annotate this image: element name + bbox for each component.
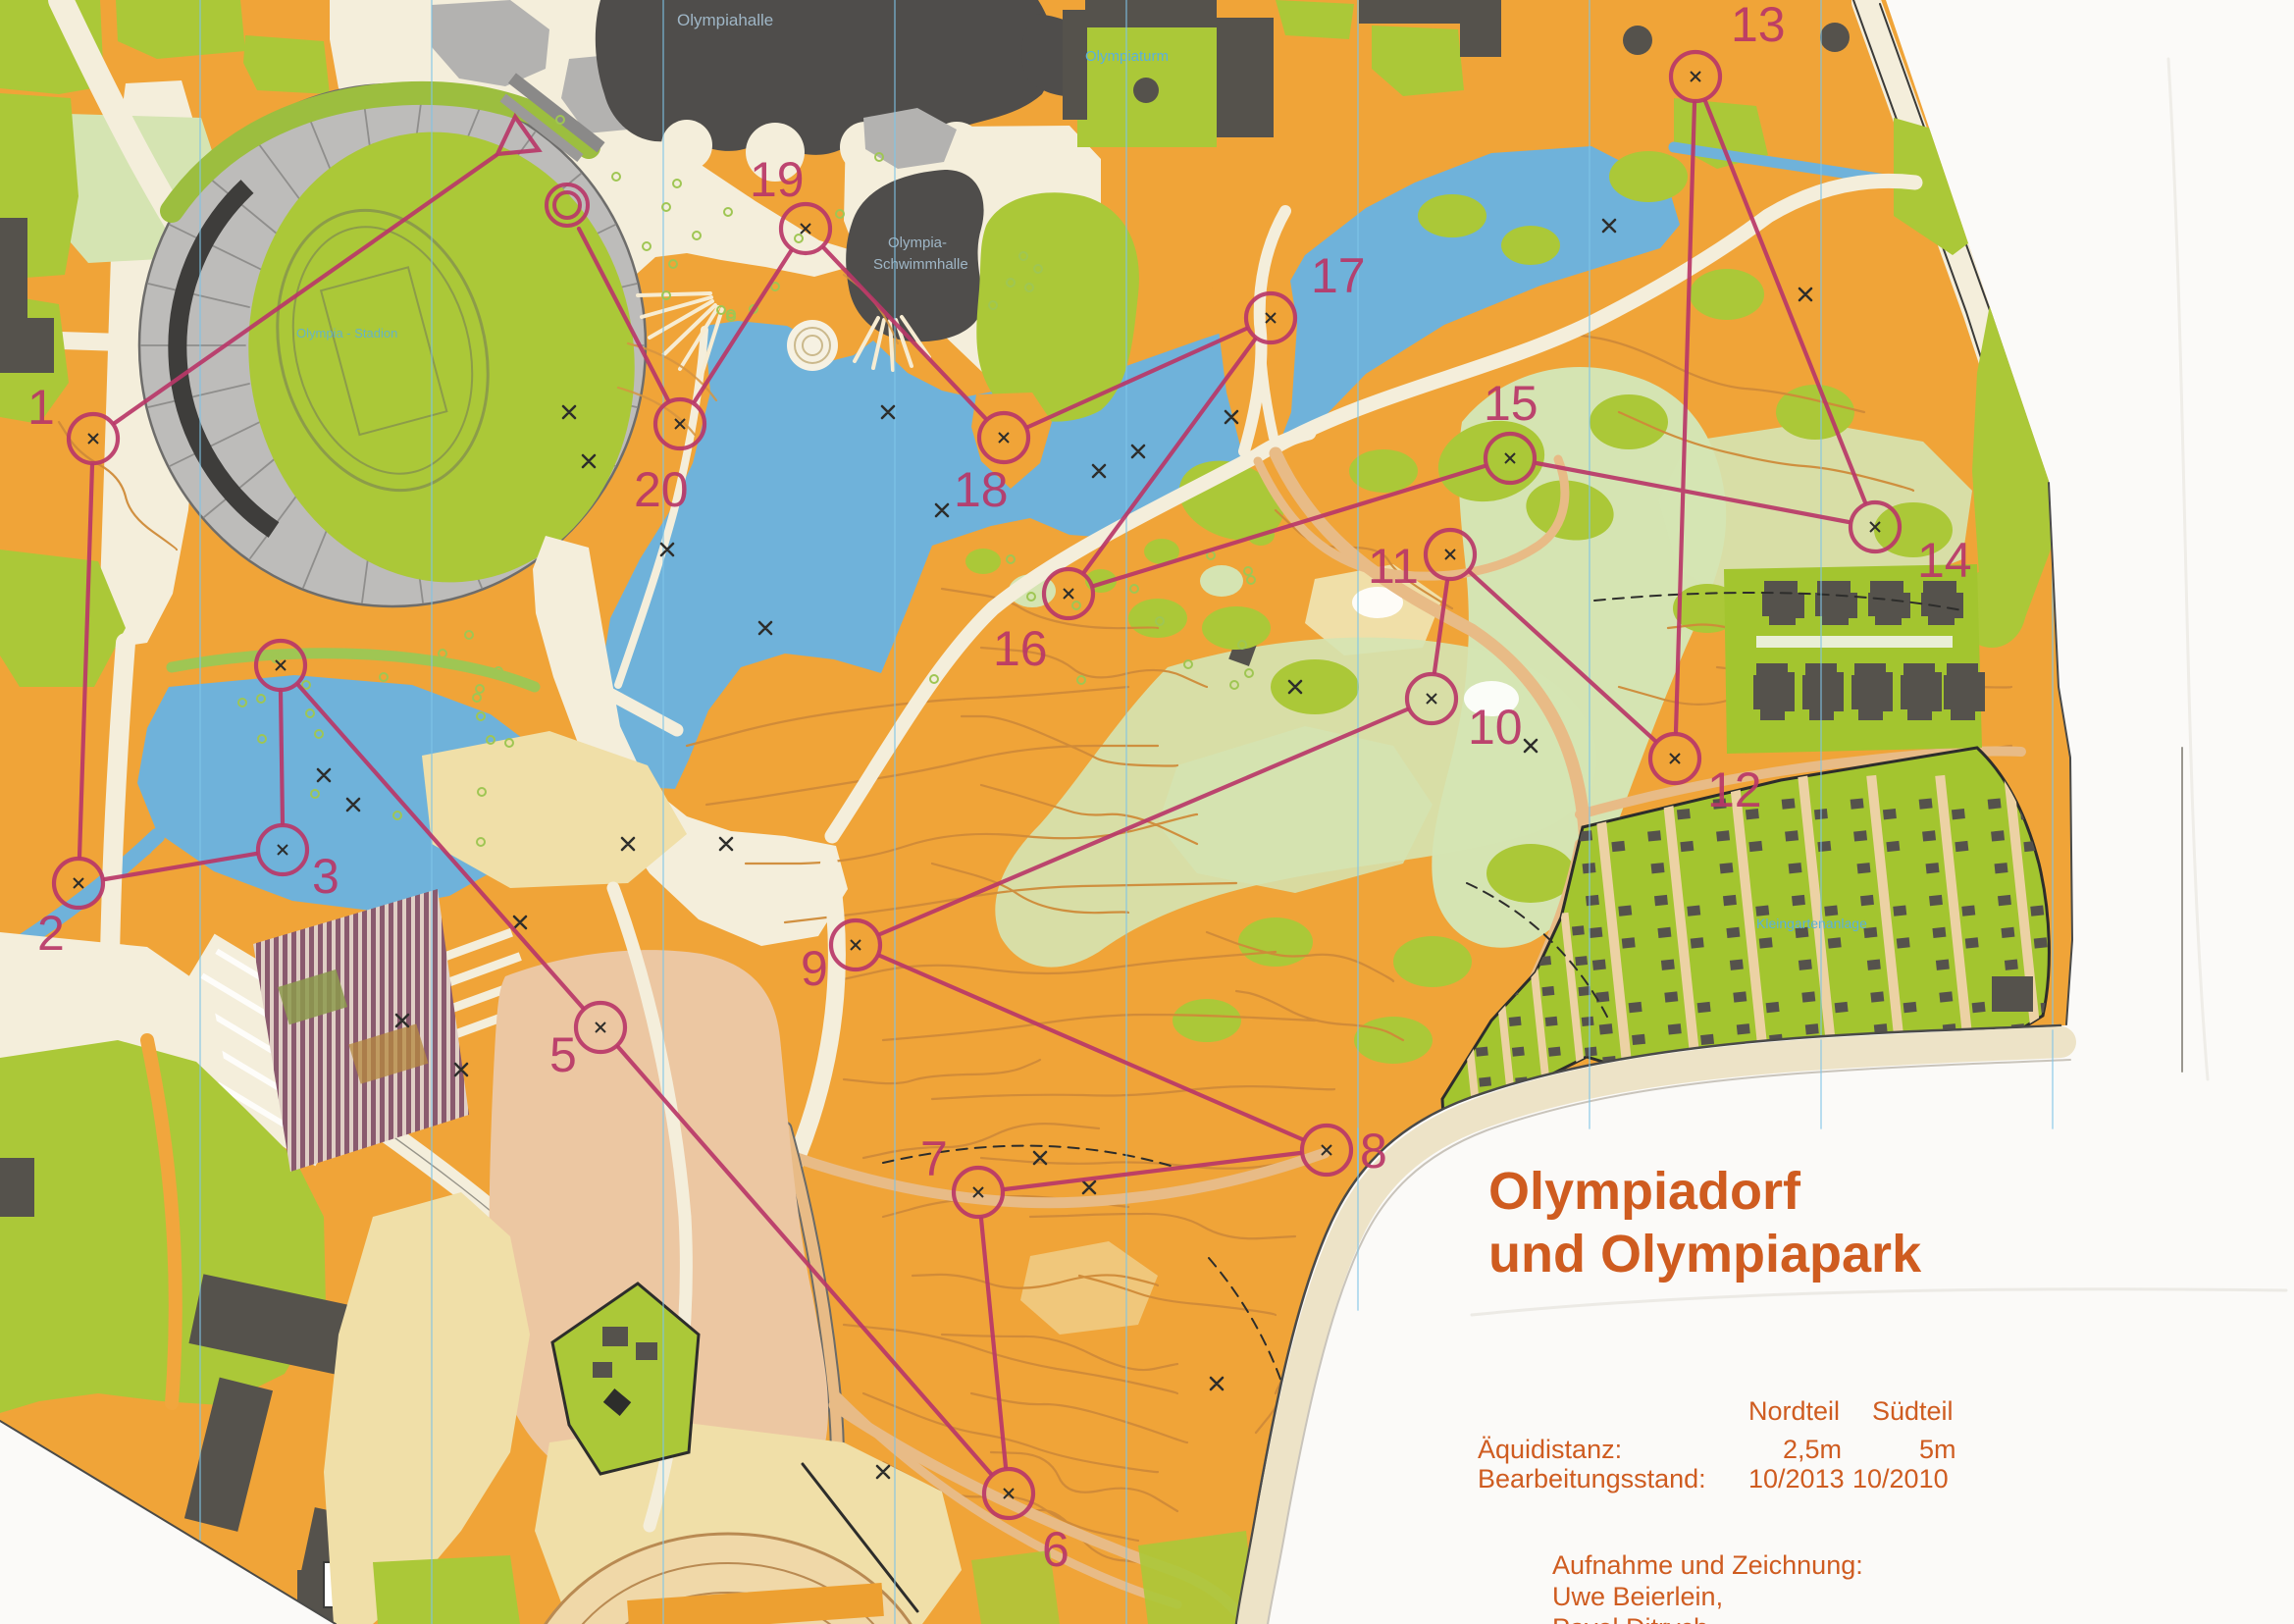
svg-text:1: 1 <box>27 380 55 435</box>
svg-text:Äquidistanz:: Äquidistanz: <box>1478 1435 1622 1464</box>
svg-text:Olympia-: Olympia- <box>888 235 947 251</box>
svg-text:Schwimmhalle: Schwimmhalle <box>873 256 968 273</box>
svg-text:Aufnahme und Zeichnung:: Aufnahme und Zeichnung: <box>1552 1550 1863 1580</box>
svg-text:10/2010: 10/2010 <box>1852 1464 1949 1493</box>
svg-text:18: 18 <box>954 462 1009 517</box>
svg-text:6: 6 <box>1042 1522 1069 1577</box>
svg-text:Südteil: Südteil <box>1872 1396 1954 1426</box>
svg-text:10: 10 <box>1468 700 1523 755</box>
svg-text:Bearbeitungsstand:: Bearbeitungsstand: <box>1478 1464 1706 1493</box>
svg-text:3: 3 <box>312 849 339 904</box>
svg-text:16: 16 <box>993 621 1048 676</box>
svg-text:5: 5 <box>549 1027 577 1082</box>
svg-text:Nordteil: Nordteil <box>1748 1396 1840 1426</box>
svg-text:Uwe Beierlein,: Uwe Beierlein, <box>1552 1582 1723 1611</box>
svg-text:7: 7 <box>920 1131 948 1186</box>
svg-text:15: 15 <box>1484 376 1538 431</box>
svg-text:und Olympiapark: und Olympiapark <box>1488 1225 1922 1283</box>
svg-text:20: 20 <box>634 462 689 517</box>
svg-text:19: 19 <box>750 152 805 207</box>
svg-text:Olympia - Stadion: Olympia - Stadion <box>296 326 397 341</box>
svg-text:5m: 5m <box>1919 1435 1956 1464</box>
svg-text:Olympiahalle: Olympiahalle <box>677 11 773 29</box>
svg-text:Kleingartenanlage: Kleingartenanlage <box>1756 916 1867 931</box>
svg-text:12: 12 <box>1707 762 1762 817</box>
svg-text:17: 17 <box>1311 248 1366 303</box>
svg-text:10/2013: 10/2013 <box>1748 1464 1845 1493</box>
svg-text:Pavel Ditrych,: Pavel Ditrych, <box>1552 1613 1716 1624</box>
svg-text:13: 13 <box>1731 0 1786 52</box>
svg-text:2: 2 <box>37 906 65 961</box>
svg-text:9: 9 <box>801 941 828 996</box>
svg-text:8: 8 <box>1360 1124 1387 1179</box>
svg-text:11: 11 <box>1368 539 1419 594</box>
svg-text:14: 14 <box>1917 533 1972 588</box>
svg-text:2,5m: 2,5m <box>1783 1435 1842 1464</box>
svg-text:Olympiadorf: Olympiadorf <box>1488 1162 1801 1221</box>
